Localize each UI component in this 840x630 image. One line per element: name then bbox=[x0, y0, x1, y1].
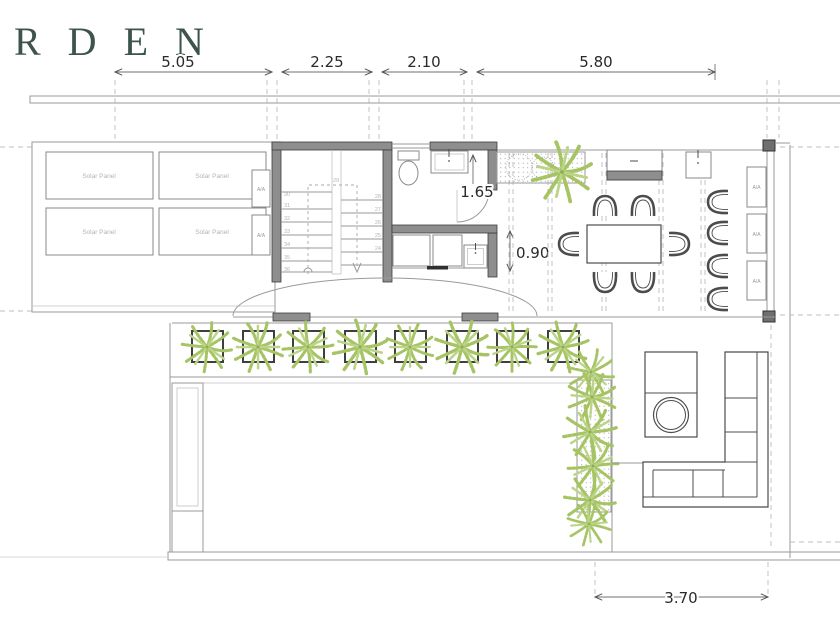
step-number: 30 bbox=[284, 192, 290, 198]
solar-panel-1: Solar Panel bbox=[46, 152, 153, 199]
ac-unit: A/A bbox=[252, 215, 270, 255]
toilet bbox=[398, 151, 419, 185]
fire-pit-table bbox=[645, 352, 697, 437]
fern-plant-icon bbox=[273, 311, 344, 382]
kitchenette bbox=[392, 235, 488, 270]
dim-5-80: 5.80 bbox=[579, 53, 612, 71]
step-number: 29 bbox=[333, 178, 339, 184]
dining-chair bbox=[669, 233, 689, 255]
fern-plant-icon bbox=[328, 314, 391, 379]
dining-chair bbox=[594, 272, 616, 292]
dim-2-25: 2.25 bbox=[310, 53, 343, 71]
fern-plant-icon bbox=[178, 317, 236, 376]
solar-panel-label: Solar Panel bbox=[82, 173, 116, 180]
solar-panel-3: Solar Panel bbox=[46, 208, 153, 255]
bar-chair bbox=[708, 288, 728, 310]
bbq-counter bbox=[607, 150, 662, 180]
bar-chairs bbox=[708, 191, 728, 310]
perimeter-wall-top bbox=[30, 96, 840, 103]
step-number: 27 bbox=[375, 207, 381, 213]
staircase: 30 31 32 33 34 35 36 29 28 27 26 25 24 bbox=[281, 150, 383, 274]
step-number: 33 bbox=[284, 229, 290, 235]
dining-chair bbox=[594, 196, 616, 216]
right-wall bbox=[763, 140, 840, 558]
planter-row bbox=[170, 311, 612, 552]
dining-chair bbox=[559, 233, 579, 255]
dim-2-10: 2.10 bbox=[407, 53, 440, 71]
wall-segment bbox=[462, 313, 498, 321]
folding-door-arc bbox=[233, 278, 537, 316]
ac-unit-label: A/A bbox=[257, 187, 266, 193]
solar-panel-label: Solar Panel bbox=[82, 229, 116, 236]
step-number: 26 bbox=[375, 220, 381, 226]
step-number: 32 bbox=[284, 216, 290, 222]
step-number: 31 bbox=[284, 203, 290, 209]
dining-chair bbox=[632, 196, 654, 216]
perimeter-wall-bottom bbox=[168, 552, 840, 560]
hedge-planter-vertical bbox=[553, 323, 628, 554]
bathroom-sink bbox=[431, 149, 468, 173]
solar-panel-label: Solar Panel bbox=[195, 173, 229, 180]
top-dimensions: 5.05 2.25 2.10 5.80 bbox=[115, 53, 779, 150]
dim-3-70: 3.70 bbox=[664, 589, 697, 607]
side-planter-strip bbox=[172, 383, 203, 552]
outdoor-sink bbox=[686, 150, 711, 178]
solar-panel-4: Solar Panel bbox=[159, 208, 266, 255]
ac-unit-label: A/A bbox=[257, 233, 266, 239]
fern-plant-icon bbox=[477, 312, 546, 381]
dim-5-05: 5.05 bbox=[161, 53, 194, 71]
bar-chair bbox=[708, 222, 728, 244]
hedge-planter-top bbox=[497, 134, 598, 208]
fern-plant-icon bbox=[223, 312, 292, 381]
solar-panel-area: Solar Panel Solar Panel Solar Panel Sola… bbox=[32, 142, 275, 312]
ac-unit: A/A bbox=[252, 170, 270, 207]
fern-plant-icon bbox=[378, 314, 443, 378]
ac-unit-label: A/A bbox=[752, 232, 761, 238]
bar-chair bbox=[708, 255, 728, 277]
roof-garden-plan: RDEN 5.05 2.25 2.10 5.80 bbox=[0, 0, 840, 630]
floor-plan-canvas: RDEN 5.05 2.25 2.10 5.80 bbox=[0, 0, 840, 630]
terrace-divider bbox=[172, 313, 775, 323]
kitchen-sink bbox=[464, 243, 487, 268]
column bbox=[763, 140, 775, 151]
bar-chair bbox=[708, 191, 728, 213]
oven-handle bbox=[427, 266, 448, 270]
ac-unit: A/A bbox=[747, 214, 766, 253]
step-number: 35 bbox=[284, 255, 290, 261]
dining-table bbox=[587, 225, 661, 263]
dimension-extension-lines bbox=[115, 80, 779, 150]
ac-unit-label: A/A bbox=[752, 279, 761, 285]
dim-0-90: 0.90 bbox=[516, 244, 549, 262]
bottom-dimension: 3.70 bbox=[595, 562, 768, 607]
solar-panel-2: Solar Panel bbox=[159, 152, 266, 199]
dining-chair bbox=[632, 272, 654, 292]
wall-segment bbox=[273, 313, 310, 321]
dining-set bbox=[559, 196, 689, 292]
lounge-area bbox=[612, 325, 840, 548]
bathroom: 1.65 bbox=[398, 149, 494, 222]
opening-dimension: 0.90 bbox=[510, 231, 549, 271]
page-title: RDEN bbox=[14, 19, 231, 64]
step-number: 25 bbox=[375, 233, 381, 239]
ac-unit: A/A bbox=[747, 261, 766, 300]
dim-1-65: 1.65 bbox=[460, 183, 493, 201]
ac-unit-label: A/A bbox=[752, 185, 761, 191]
step-number: 28 bbox=[375, 194, 381, 200]
ac-unit: A/A bbox=[747, 167, 766, 207]
step-number: 24 bbox=[375, 246, 381, 252]
solar-panel-label: Solar Panel bbox=[195, 229, 229, 236]
step-number: 36 bbox=[284, 267, 290, 273]
step-number: 34 bbox=[284, 242, 290, 248]
